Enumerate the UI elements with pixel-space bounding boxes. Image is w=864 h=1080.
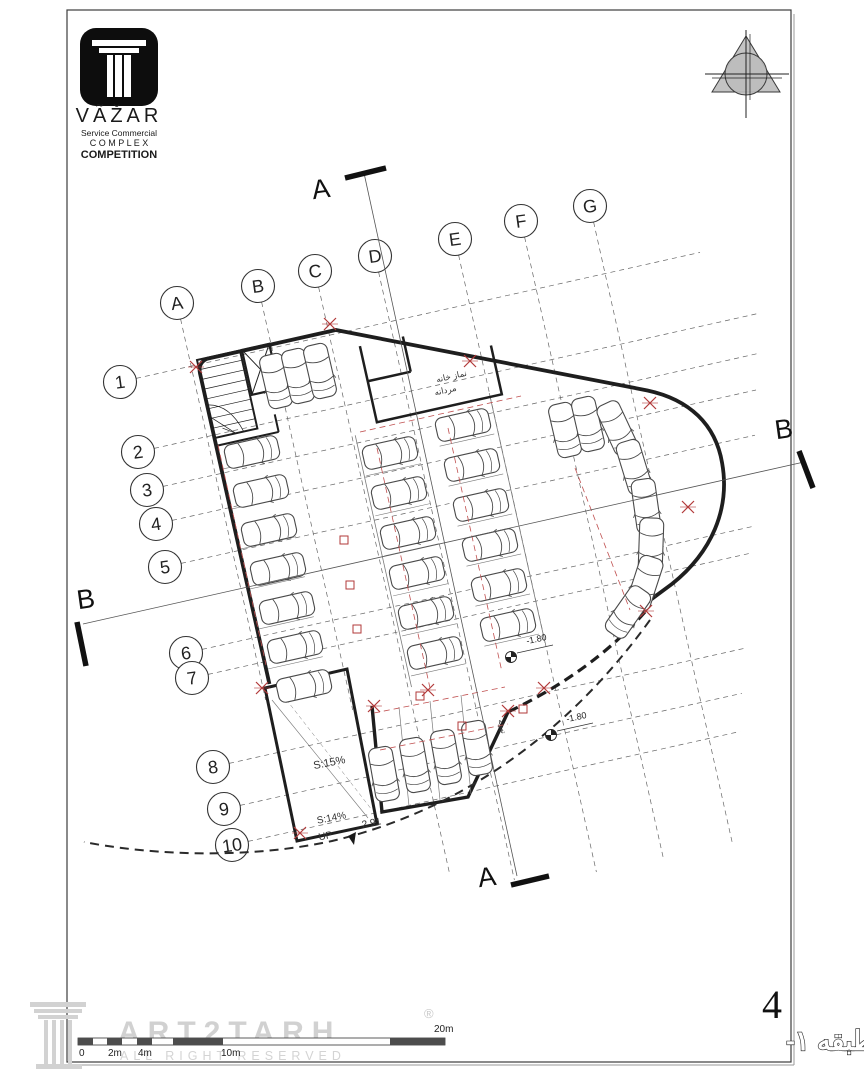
logo-brand: VÃŽAR xyxy=(76,103,163,127)
car xyxy=(258,588,317,627)
section-marker-A: A xyxy=(476,861,549,893)
sheet-number: 4 xyxy=(762,982,782,1027)
red-cross-mark xyxy=(680,501,696,513)
grid-bubble-1: 1 xyxy=(104,366,137,399)
car xyxy=(470,565,529,604)
scalebar-label-20m: 20m xyxy=(434,1024,453,1035)
section-marker-B: B xyxy=(773,413,813,488)
car xyxy=(434,405,493,444)
grid-bubble-G: G xyxy=(574,190,607,223)
car xyxy=(406,633,465,672)
drawing-sheet: VÃŽAR Service Commercial C O M P L E X C… xyxy=(0,0,864,1080)
grid-bubble-5: 5 xyxy=(149,551,182,584)
logo-subtitle: Service Commercial xyxy=(81,128,157,138)
red-cross-mark xyxy=(642,397,658,409)
car xyxy=(388,553,447,592)
grid-bubble-E: E xyxy=(439,223,472,256)
car xyxy=(443,445,502,484)
svg-text:-1.80: -1.80 xyxy=(525,632,547,646)
scalebar-segment xyxy=(390,1038,445,1045)
registered-icon: ® xyxy=(424,1006,434,1021)
grid-bubble-C: C xyxy=(299,255,332,288)
red-square-mark xyxy=(353,625,361,633)
grid-bubble-8: 8 xyxy=(197,751,230,784)
scalebar-label: 10m xyxy=(221,1048,240,1059)
logo: VÃŽAR Service Commercial C O M P L E X C… xyxy=(76,28,163,161)
car xyxy=(232,471,291,510)
red-dimension-line xyxy=(374,687,505,713)
scalebar-label: 4m xyxy=(138,1048,152,1059)
grid-bubble-4: 4 xyxy=(140,508,173,541)
red-square-mark xyxy=(346,581,354,589)
svg-text:B: B xyxy=(75,583,97,615)
title-block: 4 پلان اندازه گذاری طبقه ۱- xyxy=(762,982,864,1058)
car xyxy=(428,728,465,786)
red-dimension-line xyxy=(218,445,266,665)
north-arrow-icon xyxy=(705,30,789,118)
svg-text:A: A xyxy=(310,173,332,205)
scalebar-label: 0 xyxy=(79,1048,85,1059)
svg-text:A: A xyxy=(476,861,498,893)
car xyxy=(452,485,511,524)
red-square-mark xyxy=(519,705,527,713)
red-square-mark xyxy=(340,536,348,544)
scalebar-segment xyxy=(137,1038,152,1045)
plan-label: 2.91 xyxy=(361,816,383,831)
car xyxy=(275,666,334,705)
plan-label: S:15% xyxy=(312,754,346,772)
grid-bubble-7: 7 xyxy=(176,662,209,695)
red-dimension-line xyxy=(575,468,630,610)
sheet-title: پلان اندازه گذاری طبقه ۱- xyxy=(786,1025,864,1058)
logo-competition: COMPETITION xyxy=(81,149,157,161)
plan-label: S:14% xyxy=(316,810,347,826)
cars xyxy=(223,342,667,803)
car xyxy=(361,433,420,472)
scalebar-segment xyxy=(107,1038,122,1045)
grid-bubble-10: 10 xyxy=(216,829,249,862)
level-marker: -1.80 xyxy=(546,710,594,740)
grid-bubble-F: F xyxy=(505,205,538,238)
grid-bubble-B: B xyxy=(242,270,275,303)
svg-text:G: G xyxy=(582,195,599,217)
up-arrow-marker xyxy=(348,832,356,845)
plan-canvas: VÃŽAR Service Commercial C O M P L E X C… xyxy=(0,0,864,1080)
svg-text:C: C xyxy=(307,260,323,282)
grid-bubble-D: D xyxy=(359,240,392,273)
red-cross-mark xyxy=(420,684,436,696)
car xyxy=(397,736,434,794)
watermark-column-icon xyxy=(30,1002,86,1069)
grid-bubble-A: A xyxy=(161,287,194,320)
scalebar-segment xyxy=(78,1038,93,1045)
car xyxy=(370,473,429,512)
scalebar-segment xyxy=(173,1038,223,1045)
logo-complex: C O M P L E X xyxy=(90,138,149,148)
grid-bubble-3: 3 xyxy=(131,474,164,507)
scalebar-outline xyxy=(78,1038,445,1045)
car xyxy=(461,525,520,564)
scalebar-label: 2m xyxy=(108,1048,122,1059)
grid-bubble-2: 2 xyxy=(122,436,155,469)
grid-bubble-9: 9 xyxy=(208,793,241,826)
center-rooms xyxy=(360,318,502,422)
